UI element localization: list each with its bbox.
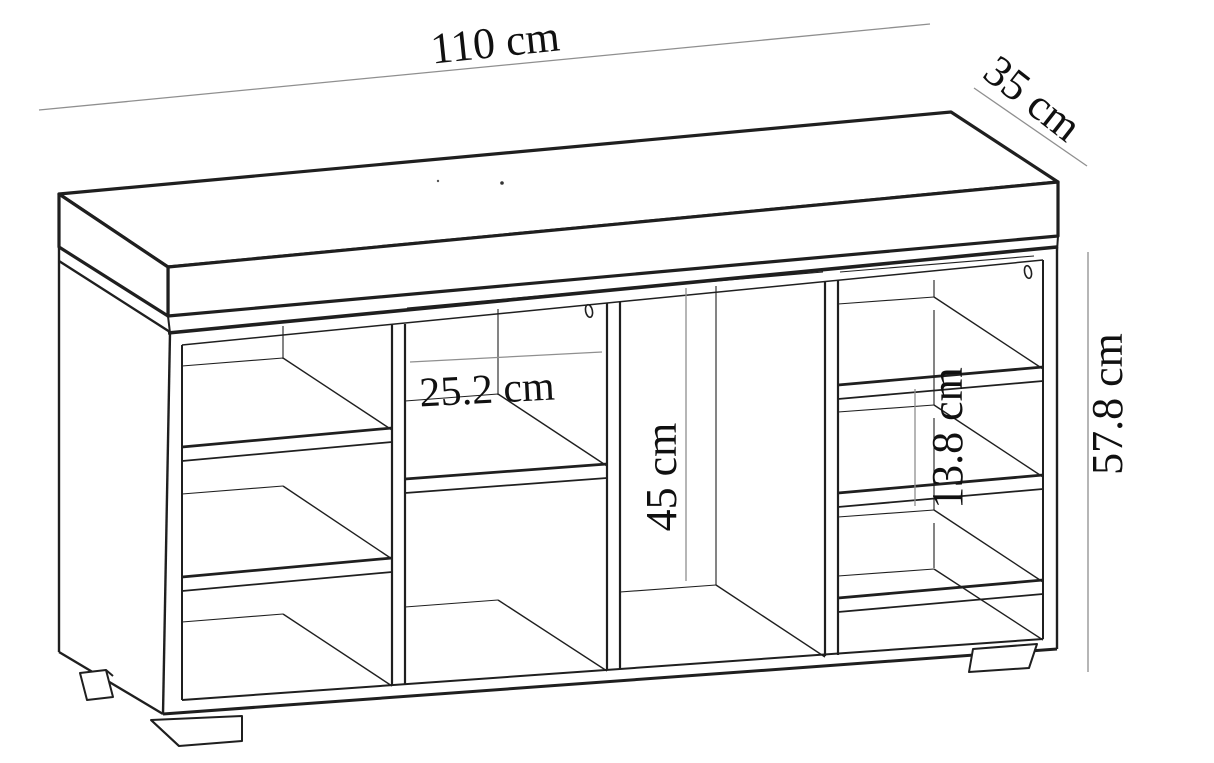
- interior-floor-lines: [182, 569, 1043, 686]
- dimension-label-shelf-spacing: 13.8 cm: [923, 367, 972, 509]
- interior-back-lines: [283, 256, 1034, 585]
- foot-right: [969, 644, 1037, 672]
- dimension-label-tall-compartment: 45 cm: [637, 423, 686, 532]
- carcass-inner-edges: [182, 260, 1043, 700]
- foot-back-left: [80, 670, 113, 700]
- foot-front-left: [151, 716, 242, 746]
- dimension-label-compartment-width: 25.2 cm: [418, 363, 556, 416]
- feet: [80, 644, 1037, 746]
- dimension-label-width: 110 cm: [428, 11, 562, 73]
- screw-hole-icon: [584, 304, 593, 318]
- surface-dot: [437, 180, 439, 182]
- compartment-width-dimension-line: [410, 352, 602, 362]
- surface-dot: [500, 181, 504, 185]
- screw-hole-icon: [1023, 265, 1032, 279]
- technical-drawing-page: 110 cm 35 cm 57.8 cm 25.2 cm 45 cm 13.8 …: [0, 0, 1214, 763]
- partitions: [392, 280, 838, 685]
- dimension-label-depth: 35 cm: [975, 46, 1091, 152]
- left-column-shelves: [182, 358, 392, 591]
- bench-cushion: [59, 112, 1058, 316]
- dimension-label-height: 57.8 cm: [1083, 333, 1132, 475]
- shoe-bench-dimension-drawing: 110 cm 35 cm 57.8 cm 25.2 cm 45 cm 13.8 …: [0, 0, 1214, 763]
